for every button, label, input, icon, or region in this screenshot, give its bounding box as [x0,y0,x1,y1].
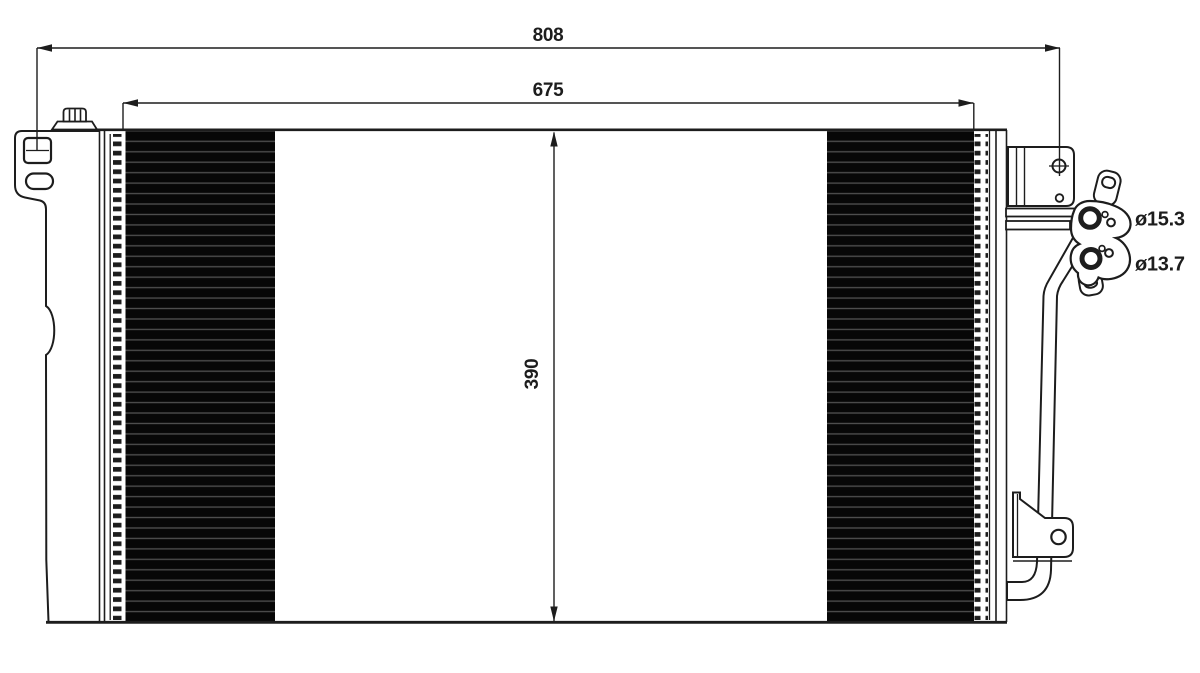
port-bottom [1082,250,1100,268]
dimension-label-675: 675 [533,80,565,101]
bracket-slot-hole [26,174,53,190]
filler-cap [52,109,97,130]
port-top-diameter-label: ø15.3 [1135,209,1185,231]
dimension-core-height: 390 [522,132,558,622]
left-mount-bracket [15,131,100,622]
right-tank [996,130,1007,622]
port-top [1081,209,1100,228]
left-tank [100,130,105,622]
right-fin-serration [975,130,990,620]
dimension-label-808: 808 [533,25,564,46]
dimension-label-390: 390 [522,359,543,390]
connection-block [1071,169,1131,297]
top-right-mount-bracket [1008,147,1074,206]
connection-pipes [1006,209,1077,230]
technical-drawing-page: ø15.3 ø13.7 808 675 390 [0,0,1200,673]
fin-block-left [126,131,276,622]
bracket-bolt-hole [1051,530,1065,544]
condenser-diagram: ø15.3 ø13.7 808 675 390 [0,0,1200,673]
fin-block-right [827,131,974,622]
bracket-small-hole [1056,194,1064,202]
dimension-core-width: 675 [123,80,974,130]
left-fin-serration [110,134,126,620]
port-diameter-labels: ø15.3 ø13.7 [1135,209,1185,276]
port-bottom-diameter-label: ø13.7 [1135,254,1185,276]
